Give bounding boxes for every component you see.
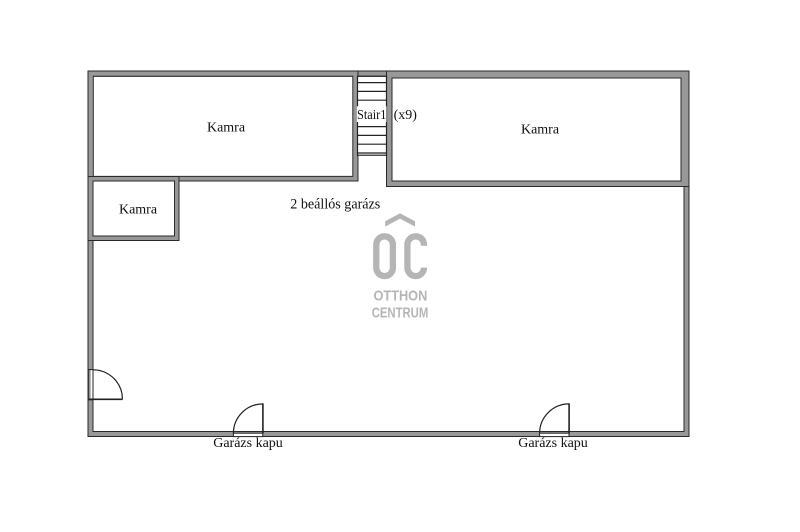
svg-text:CENTRUM: CENTRUM <box>372 305 429 322</box>
svg-text:Stair1: Stair1 <box>357 108 386 123</box>
svg-text:Kamra: Kamra <box>207 121 246 136</box>
svg-text:Kamra: Kamra <box>119 203 158 218</box>
svg-text:OTTHON: OTTHON <box>374 287 428 304</box>
svg-text:(x9): (x9) <box>394 108 418 123</box>
svg-text:Garázs kapu: Garázs kapu <box>518 436 588 451</box>
svg-text:Garázs kapu: Garázs kapu <box>213 436 283 451</box>
svg-text:Kamra: Kamra <box>521 123 560 138</box>
svg-text:2 beállós garázs: 2 beállós garázs <box>290 197 380 213</box>
